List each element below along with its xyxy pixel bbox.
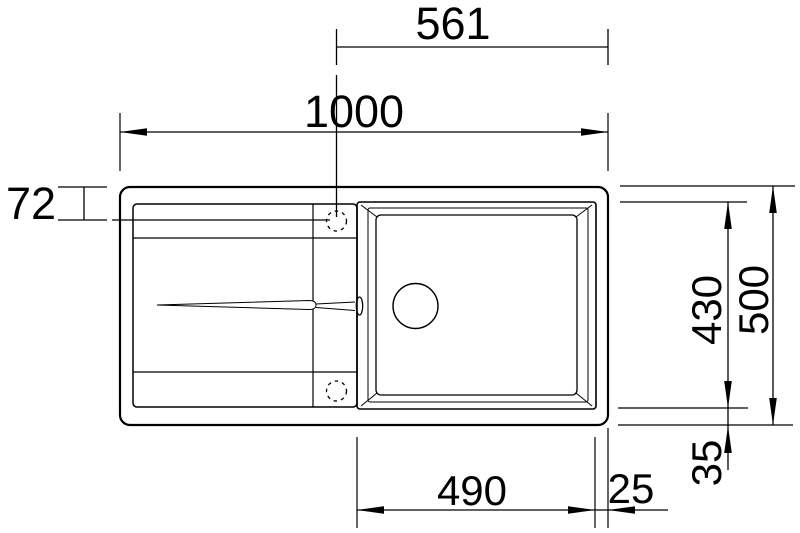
arrow-430-top (724, 202, 732, 229)
arrow-430-bottom (724, 381, 732, 408)
arrow-490-right (568, 506, 595, 514)
arrow-500-bottom (769, 398, 777, 425)
dim-label-overall-depth: 500 (730, 265, 777, 335)
channel-extension-top (316, 302, 355, 304)
drainboard (133, 204, 363, 407)
drainboard-center-channel (157, 301, 316, 310)
channel-extension-bottom (316, 308, 355, 311)
dim-bottom: 490 25 (357, 428, 668, 528)
tap-hole-bottom (327, 381, 347, 401)
dim-right-side: 430 35 500 (618, 186, 795, 486)
arrow-490-left (357, 506, 384, 514)
dim-label-bowl-depth: 430 (683, 275, 730, 345)
bowl-bevel-bottom-right (576, 393, 592, 406)
bowl (357, 202, 596, 409)
bowl-bevel-bottom-left (361, 393, 377, 406)
bowl-bevel-top-right (576, 205, 592, 217)
dim-label-faucet-offset: 72 (6, 178, 56, 229)
dim-label-right-margin: 25 (608, 465, 655, 512)
dim-label-bottom-margin: 35 (683, 440, 730, 487)
dim-label-faucet-to-right: 561 (415, 0, 490, 49)
dim-overall-width: 1000 (120, 86, 608, 171)
bowl-mid-rim (368, 208, 588, 402)
sink-dimension-drawing: 561 1000 72 430 35 500 (0, 0, 800, 533)
arrow-500-top (769, 186, 777, 213)
bowl-bevel-top-left (361, 205, 377, 217)
dim-label-bowl-width: 490 (437, 467, 507, 514)
arrow-left (120, 128, 147, 136)
arrow-right (581, 128, 608, 136)
drain-hole (393, 284, 438, 329)
bowl-inner-edge (376, 215, 577, 395)
drawing-canvas: 561 1000 72 430 35 500 (0, 0, 800, 533)
dim-label-overall-width: 1000 (304, 86, 404, 137)
